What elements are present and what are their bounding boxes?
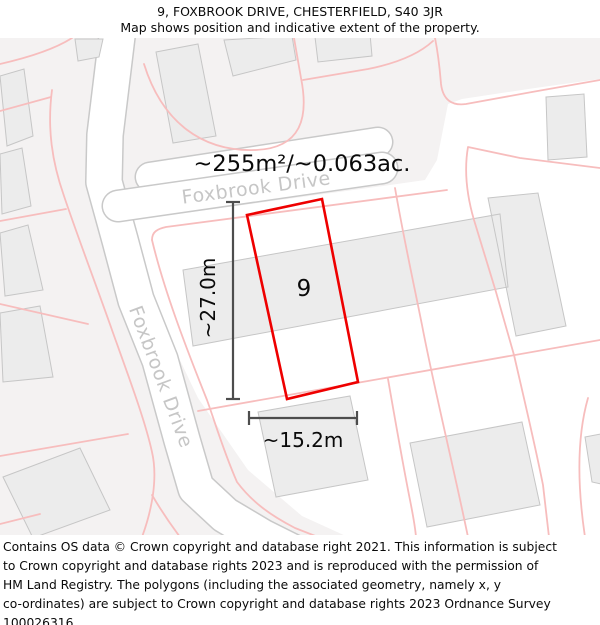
attribution-line: co-ordinates) are subject to Crown copyr… xyxy=(3,595,598,614)
plot-number-label: 9 xyxy=(297,276,312,302)
map-canvas: ~27.0m ~15.2m Foxbrook Drive Foxbrook Dr… xyxy=(0,38,600,535)
page: 9, FOXBROOK DRIVE, CHESTERFIELD, S40 3JR… xyxy=(0,0,600,625)
dimension-width-label: ~15.2m xyxy=(263,428,344,452)
attribution: Contains OS data © Crown copyright and d… xyxy=(0,535,600,625)
attribution-line: Contains OS data © Crown copyright and d… xyxy=(3,538,598,557)
dimension-width: ~15.2m xyxy=(249,411,357,452)
building xyxy=(546,94,587,160)
attribution-line: HM Land Registry. The polygons (includin… xyxy=(3,576,598,595)
attribution-line: to Crown copyright and database rights 2… xyxy=(3,557,598,576)
property-map: ~27.0m ~15.2m Foxbrook Drive Foxbrook Dr… xyxy=(0,38,600,535)
page-title: 9, FOXBROOK DRIVE, CHESTERFIELD, S40 3JR xyxy=(0,4,600,20)
header: 9, FOXBROOK DRIVE, CHESTERFIELD, S40 3JR… xyxy=(0,0,600,36)
page-subtitle: Map shows position and indicative extent… xyxy=(0,20,600,36)
area-label: ~255m²/~0.063ac. xyxy=(194,151,411,177)
attribution-line: 100026316. xyxy=(3,614,598,625)
dimension-height-label: ~27.0m xyxy=(196,258,220,339)
